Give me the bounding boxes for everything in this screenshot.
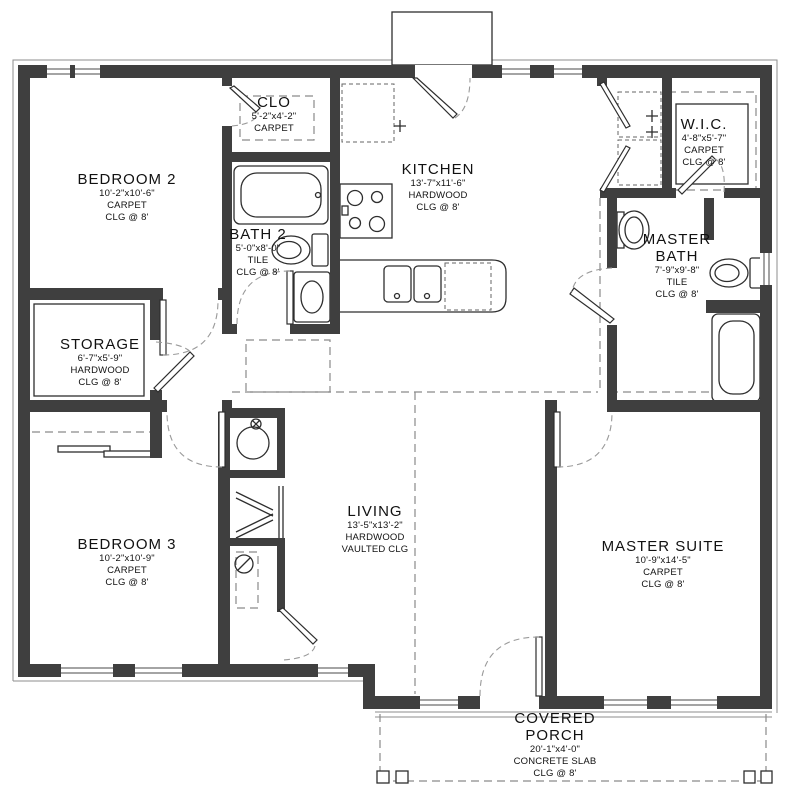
- room-dims: 4'-8"x5'-7": [654, 133, 754, 145]
- back-stoop: [392, 12, 492, 65]
- room-label-bedroom3: BEDROOM 3 10'-2"x10'-9" CARPET CLG @ 8': [37, 536, 217, 589]
- room-dims: 6'-7"x5'-9": [35, 353, 165, 365]
- room-floor: CARPET: [224, 123, 324, 135]
- bedroom3-door: [167, 412, 225, 467]
- room-dims: 20'-1"x4'-0": [500, 744, 610, 756]
- room-floor: HARDWOOD: [35, 365, 165, 377]
- sliding-closet-doors: [58, 446, 156, 457]
- sink-bath2: [294, 272, 330, 322]
- window-bedroom3-1: [56, 664, 118, 677]
- room-dims: 5'-0"x8'-0": [208, 243, 308, 255]
- window-bedroom2: [42, 65, 105, 78]
- back-door-opening: [415, 65, 472, 78]
- room-floor: CARPET: [654, 145, 754, 157]
- room-label-kitchen: KITCHEN 13'-7"x11'-6" HARDWOOD CLG @ 8': [368, 161, 508, 214]
- room-ceiling: CLG @ 8': [37, 577, 217, 589]
- room-name: STORAGE: [35, 336, 165, 353]
- room-ceiling: CLG @ 8': [632, 289, 722, 301]
- linen-closet: [235, 486, 283, 573]
- room-floor: HARDWOOD: [368, 190, 508, 202]
- room-label-covered-porch: COVERED PORCH 20'-1"x4'-0" CONCRETE SLAB…: [500, 710, 610, 780]
- room-dims: 10'-2"x10'-6": [37, 188, 217, 200]
- master-suite-door: [554, 412, 612, 467]
- room-label-storage: STORAGE 6'-7"x5'-9" HARDWOOD CLG @ 8': [35, 336, 165, 389]
- front-door: [480, 637, 542, 696]
- room-ceiling: CLG @ 8': [35, 377, 165, 389]
- room-name: BATH 2: [208, 226, 308, 243]
- room-floor: TILE: [632, 277, 722, 289]
- room-name: CLO: [224, 94, 324, 111]
- porch-post: [744, 771, 755, 783]
- room-label-clo: CLO 5'-2"x4'-2" CARPET: [224, 94, 324, 135]
- room-name: BEDROOM 2: [37, 171, 217, 188]
- room-floor: CONCRETE SLAB: [500, 756, 610, 768]
- porch-post: [377, 771, 389, 783]
- laundry-bifold-doors: [600, 82, 630, 192]
- hall-closet-door: [279, 608, 317, 660]
- room-label-living: LIVING 13'-5"x13'-2" HARDWOOD VAULTED CL…: [305, 503, 445, 556]
- water-heater: [237, 419, 269, 459]
- room-ceiling: CLG @ 8': [37, 212, 217, 224]
- room-floor: HARDWOOD: [305, 532, 445, 544]
- room-name: LIVING: [305, 503, 445, 520]
- window-nook-1: [497, 65, 535, 78]
- room-name: MASTER SUITE: [573, 538, 753, 555]
- front-door-opening: [480, 696, 539, 709]
- window-master-2: [666, 696, 722, 709]
- bedroom2-door: [160, 300, 218, 355]
- window-master-bath: [760, 248, 772, 290]
- room-ceiling: CLG @ 8': [368, 202, 508, 214]
- window-master-1: [599, 696, 652, 709]
- floor-plan: BEDROOM 2 10'-2"x10'-6" CARPET CLG @ 8' …: [0, 0, 789, 800]
- bathtub-master: [712, 314, 760, 402]
- window-hall: [313, 664, 353, 677]
- room-ceiling: CLG @ 8': [654, 157, 754, 169]
- room-ceiling: CLG @ 8': [573, 579, 753, 591]
- window-bedroom3-2: [130, 664, 187, 677]
- room-dims: 13'-7"x11'-6": [368, 178, 508, 190]
- room-label-master-suite: MASTER SUITE 10'-9"x14'-5" CARPET CLG @ …: [573, 538, 753, 591]
- room-ceiling: VAULTED CLG: [305, 544, 445, 556]
- porch-post: [761, 771, 772, 783]
- dishwasher: [445, 263, 491, 310]
- room-label-bath2: BATH 2 5'-0"x8'-0" TILE CLG @ 8': [208, 226, 308, 279]
- room-name: W.I.C.: [654, 116, 754, 133]
- room-label-bedroom2: BEDROOM 2 10'-2"x10'-6" CARPET CLG @ 8': [37, 171, 217, 224]
- room-dims: 7'-9"x9'-8": [632, 265, 722, 277]
- bathtub-2: [234, 166, 328, 224]
- back-door: [413, 78, 470, 118]
- room-label-master-bath: MASTER BATH 7'-9"x9'-8" TILE CLG @ 8': [632, 231, 722, 301]
- room-name: COVERED PORCH: [500, 710, 610, 744]
- room-name: KITCHEN: [368, 161, 508, 178]
- room-floor: CARPET: [37, 200, 217, 212]
- room-ceiling: CLG @ 8': [208, 267, 308, 279]
- room-floor: TILE: [208, 255, 308, 267]
- room-floor: CARPET: [573, 567, 753, 579]
- room-name: BEDROOM 3: [37, 536, 217, 553]
- window-nook-2: [549, 65, 587, 78]
- room-floor: CARPET: [37, 565, 217, 577]
- refrigerator: [342, 84, 406, 142]
- window-living: [415, 696, 463, 709]
- porch-post: [396, 771, 408, 783]
- room-name: MASTER BATH: [632, 231, 722, 265]
- kitchen-sink: [384, 266, 441, 302]
- room-dims: 10'-9"x14'-5": [573, 555, 753, 567]
- room-dims: 13'-5"x13'-2": [305, 520, 445, 532]
- room-ceiling: CLG @ 8': [500, 768, 610, 780]
- room-label-wic: W.I.C. 4'-8"x5'-7" CARPET CLG @ 8': [654, 116, 754, 169]
- room-dims: 10'-2"x10'-9": [37, 553, 217, 565]
- room-dims: 5'-2"x4'-2": [224, 111, 324, 123]
- master-bath-door: [570, 268, 614, 323]
